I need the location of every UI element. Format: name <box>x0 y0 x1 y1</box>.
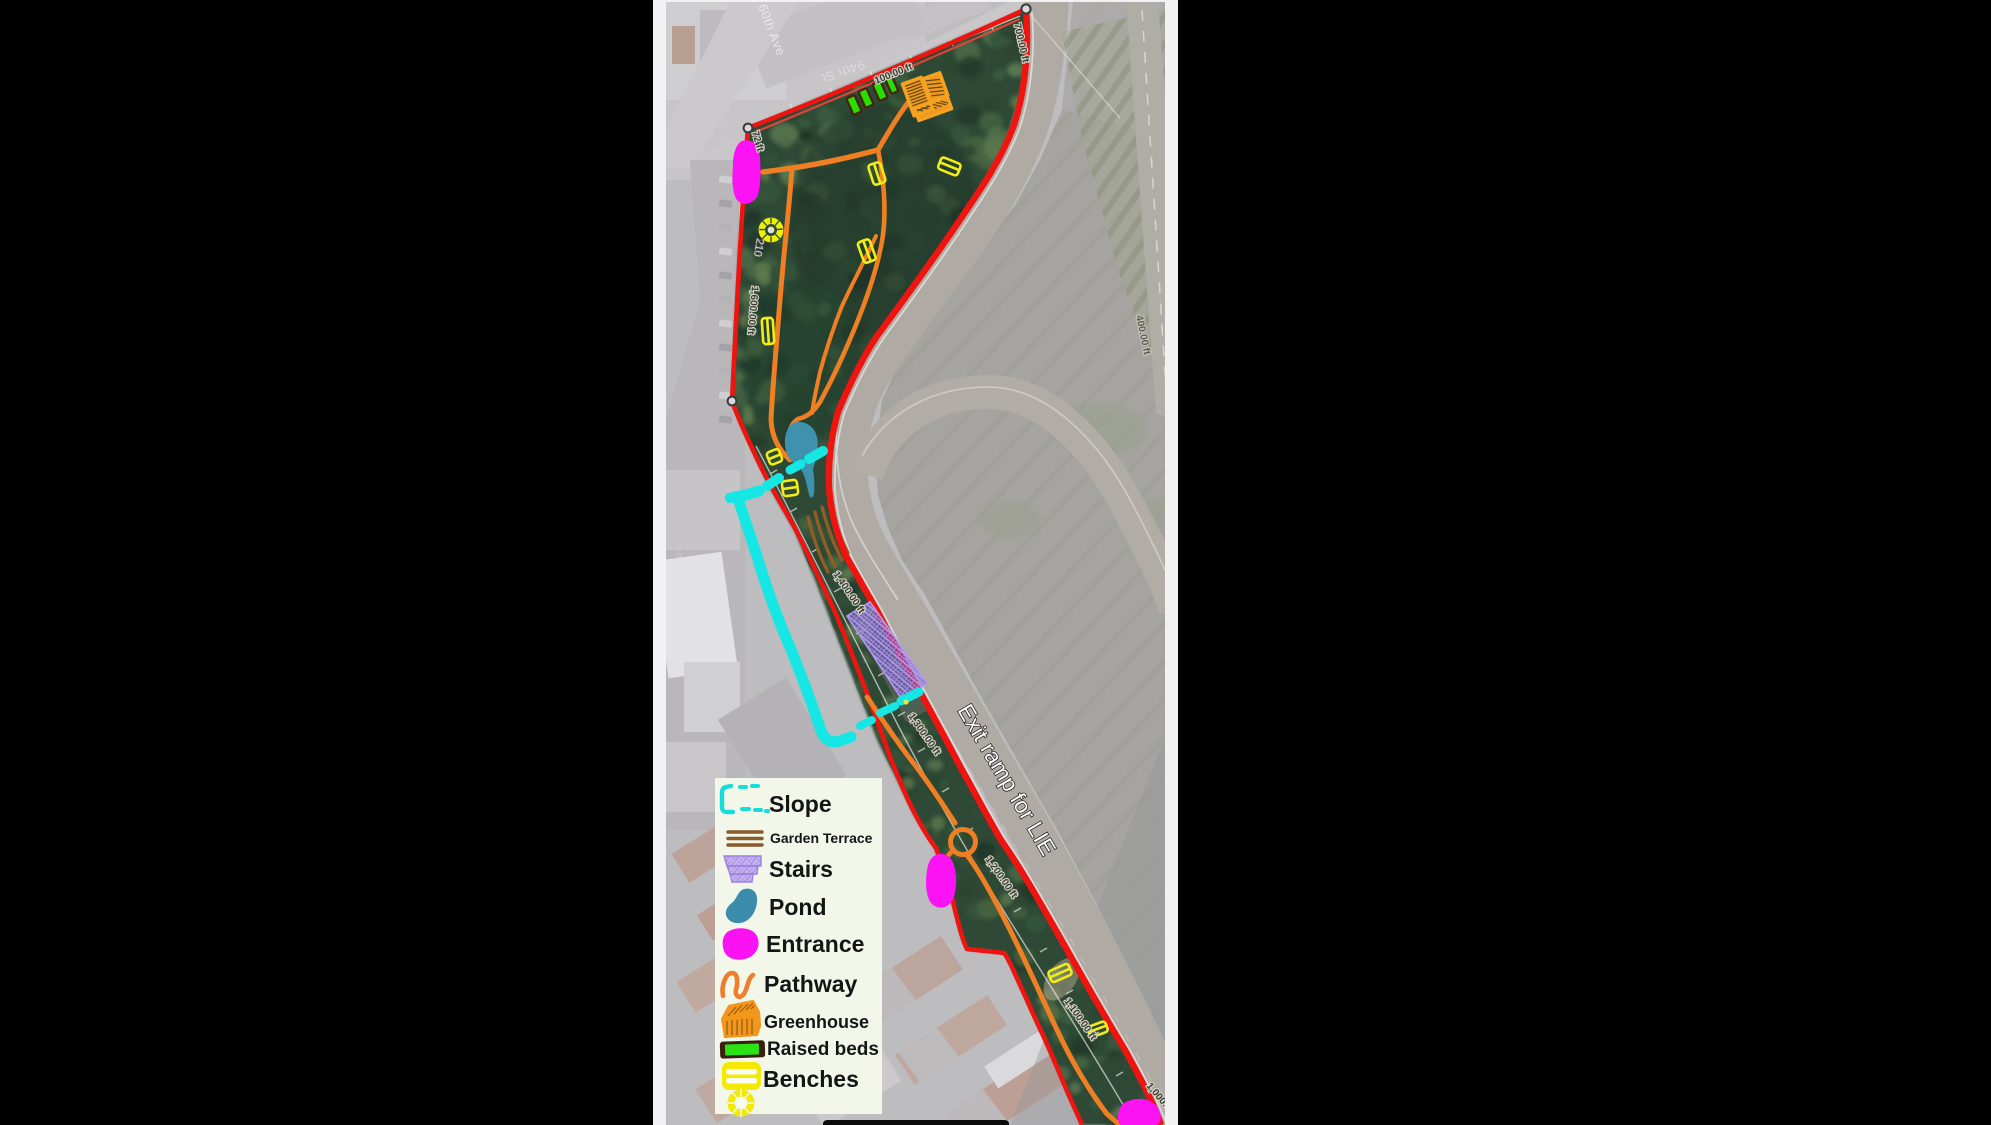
svg-text:Raised beds: Raised beds <box>767 1039 879 1060</box>
svg-text:Benches: Benches <box>763 1066 859 1092</box>
svg-text:Garden Terrace: Garden Terrace <box>770 830 873 846</box>
svg-text:Pathway: Pathway <box>764 971 858 997</box>
svg-text:Pond: Pond <box>769 894 827 920</box>
svg-text:Slope: Slope <box>769 791 832 817</box>
svg-text:Greenhouse: Greenhouse <box>764 1012 869 1032</box>
svg-text:Stairs: Stairs <box>769 856 833 882</box>
svg-text:Entrance: Entrance <box>766 931 864 957</box>
